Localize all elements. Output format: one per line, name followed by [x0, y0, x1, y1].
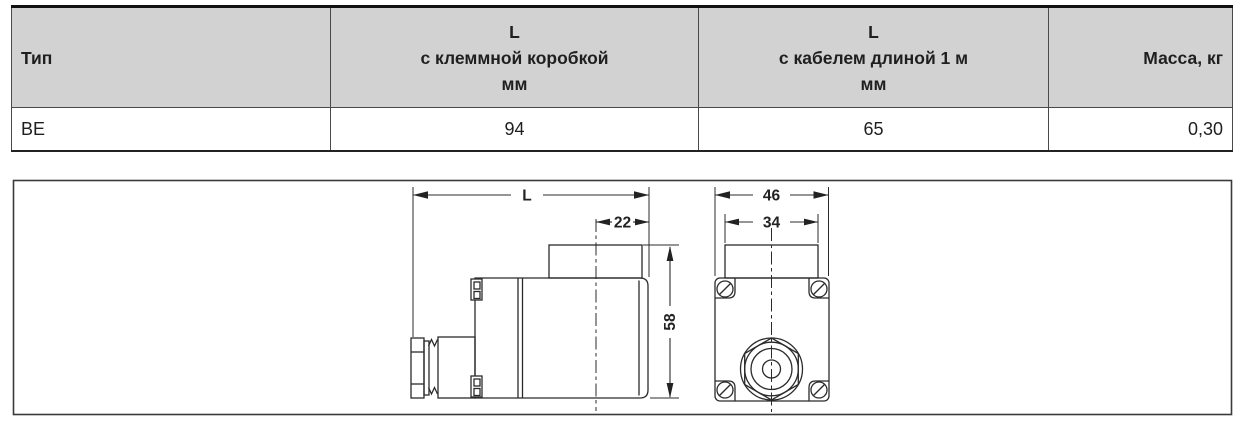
gland-housing	[438, 337, 475, 398]
screw-top-left	[717, 281, 733, 297]
dimension-drawing: L 22 58	[0, 0, 1241, 432]
screw-bottom-left	[717, 382, 733, 398]
terminal-block-top	[471, 279, 482, 300]
dim-cap-offset-label: 22	[614, 215, 631, 232]
arrow-left	[725, 219, 739, 226]
arrow-right	[814, 191, 829, 198]
arrow-left	[413, 191, 428, 198]
arrow-up	[667, 246, 674, 261]
cable-gland	[411, 338, 429, 398]
dim-width-outer-label: 46	[763, 188, 781, 205]
arrow-right	[635, 219, 649, 226]
arrow-right	[804, 219, 818, 226]
cable-zigzag-top	[429, 340, 438, 347]
cable-zigzag-bottom	[429, 388, 438, 395]
arrow-left	[596, 219, 610, 226]
arrow-left	[715, 191, 730, 198]
screw-bottom-right	[811, 382, 827, 398]
datasheet-page: { "colors": { "header_bg": "#d2d2d2", "l…	[0, 0, 1241, 432]
arrow-down	[667, 383, 674, 398]
dim-length-label: L	[522, 188, 531, 205]
switch-body	[475, 278, 648, 398]
dim-height-label: 58	[662, 313, 679, 331]
arrow-right	[634, 191, 649, 198]
front-view	[715, 228, 829, 412]
dim-width-cap-label: 34	[763, 215, 781, 232]
terminal-block-bottom	[471, 376, 482, 397]
screw-top-right	[811, 281, 827, 297]
side-view	[411, 219, 648, 411]
